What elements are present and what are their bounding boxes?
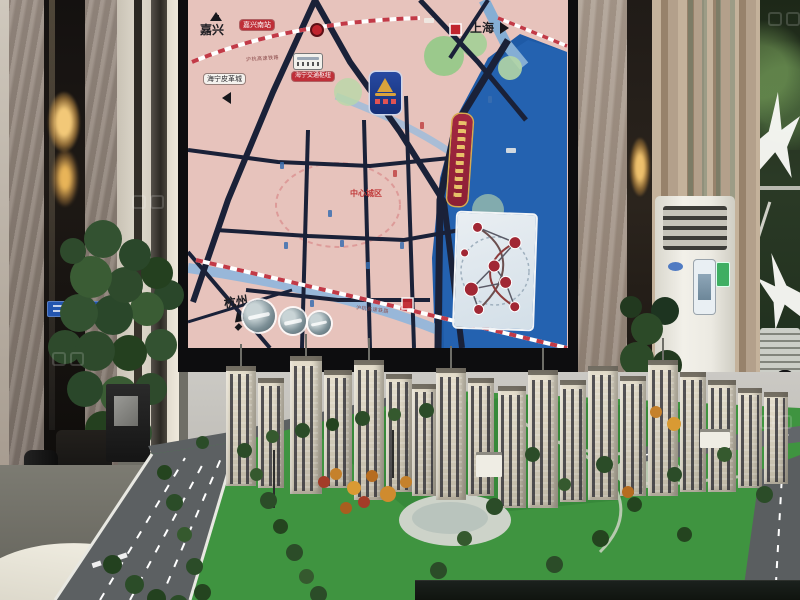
model-tower	[764, 392, 788, 484]
watermark	[768, 12, 800, 32]
model-lowrise	[700, 432, 730, 448]
model-tower	[738, 388, 762, 488]
city-label-shanghai: 上海	[470, 22, 494, 34]
small-map-label	[280, 162, 284, 169]
rail-network-inset	[454, 213, 536, 330]
city-label-jiaxing: 嘉兴	[200, 24, 224, 36]
antenna-pole	[368, 338, 370, 360]
transport-photo-inset	[243, 300, 275, 332]
sailboat-logo-deck	[375, 93, 396, 96]
watermark	[132, 195, 172, 215]
ac-energy-label	[717, 263, 729, 286]
model-tower	[290, 356, 322, 494]
model-tower	[468, 378, 494, 496]
transport-photo-inset	[280, 308, 306, 334]
model-glass-barrier	[415, 580, 800, 600]
model-tower	[588, 366, 618, 500]
potted-plant-left	[60, 238, 86, 264]
antenna-pole	[662, 338, 664, 360]
model-tower	[226, 366, 256, 486]
leather-city-badge: 海宁皮革城	[204, 74, 245, 84]
small-map-label	[424, 18, 434, 23]
ac-vent-grille	[663, 206, 727, 250]
antenna-pole	[240, 344, 242, 366]
antenna-pole	[542, 348, 544, 370]
small-map-label	[420, 122, 424, 129]
lamp-glow	[48, 92, 80, 152]
location-map-board: 嘉兴 嘉兴南站 沪杭高速铁路 海宁皮革城 海宁交通枢纽 上海 中心城区 杭州 沪…	[188, 0, 568, 348]
model-tower	[258, 378, 284, 488]
small-map-label	[310, 300, 314, 307]
small-map-label	[488, 96, 492, 103]
leather-city-arrow-icon	[216, 92, 231, 104]
antenna-pole	[450, 346, 452, 368]
model-trees	[196, 436, 209, 449]
lamp-glow	[630, 138, 650, 196]
window-frame	[755, 186, 800, 190]
north-arrow-stem	[214, 15, 219, 21]
project-logo-text-marks	[375, 99, 396, 104]
train-station-icon	[294, 54, 322, 69]
small-map-label	[506, 148, 516, 153]
antenna-pole	[305, 334, 307, 356]
project-logo-badge	[370, 72, 401, 114]
ac-brand-logo	[668, 262, 683, 271]
model-tower	[648, 360, 678, 496]
small-map-label	[366, 262, 370, 269]
model-autumn-trees	[330, 468, 342, 480]
ac-screen	[698, 274, 711, 300]
model-tower	[620, 376, 646, 496]
small-map-label	[393, 170, 397, 177]
model-tower	[498, 386, 526, 508]
model-tower	[412, 384, 436, 496]
station-badge: 嘉兴南站	[240, 20, 274, 30]
small-map-label	[328, 210, 332, 217]
small-map-label	[340, 240, 344, 247]
model-clubhouse	[476, 455, 502, 477]
potted-plant-right	[620, 296, 642, 318]
model-tower	[560, 380, 586, 502]
small-map-label	[400, 242, 404, 249]
watermark	[52, 352, 92, 372]
street-lamp	[273, 450, 275, 508]
transport-hub-badge: 海宁交通枢纽	[292, 72, 334, 81]
sailboat-logo-icon	[377, 78, 393, 92]
street-lamp	[392, 430, 394, 478]
small-map-label	[284, 242, 288, 249]
model-tower	[386, 374, 412, 492]
wall-sign	[47, 301, 105, 317]
lamp-glow	[52, 150, 78, 206]
model-tower	[528, 370, 558, 508]
model-tower	[436, 368, 466, 500]
transport-photo-inset	[308, 312, 331, 335]
central-district-label: 中心城区	[350, 190, 382, 198]
shanghai-arrow-icon	[500, 22, 515, 34]
network-diagram	[454, 213, 536, 330]
watermark	[760, 415, 800, 435]
model-tower	[354, 360, 384, 500]
sales-center-photo: 嘉兴 嘉兴南站 沪杭高速铁路 海宁皮革城 海宁交通枢纽 上海 中心城区 杭州 沪…	[0, 0, 800, 600]
